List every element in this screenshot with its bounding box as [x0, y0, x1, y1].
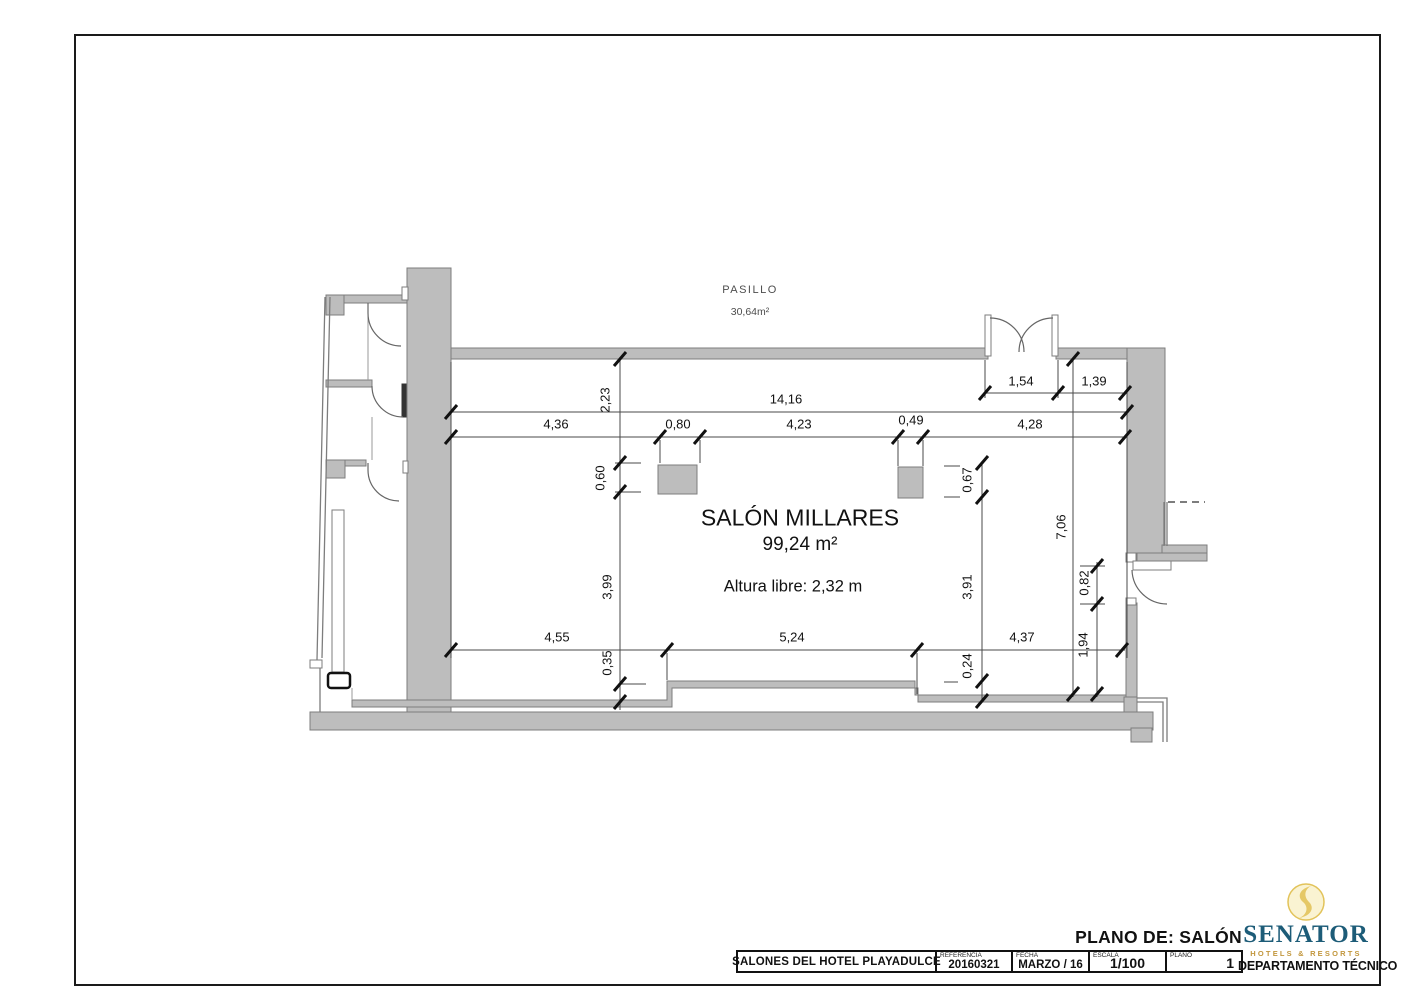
column-right: [898, 467, 923, 498]
dim-top-left-seg: 4,36: [543, 417, 568, 432]
door-jamb-stub-top: [402, 287, 408, 300]
dim-bottom-left-seg: 4,55: [544, 630, 569, 645]
dim-top-door: 1,54: [1008, 374, 1033, 389]
dim-top-door-right: 1,39: [1081, 374, 1106, 389]
top-door-right-leaf: [1052, 315, 1058, 356]
dim-col-left-width: 0,80: [665, 417, 690, 432]
title-block-table: SALONES DEL HOTEL PLAYADULCE REFERENCIA …: [736, 950, 1243, 973]
dim-right-inner: 3,91: [960, 574, 975, 599]
senator-logo-icon: [1286, 882, 1326, 922]
vestibule-partition-lines: [352, 313, 372, 700]
title-block-sheet-cell: PLANO 1: [1165, 952, 1241, 971]
dim-right-door-offset: 1,94: [1076, 632, 1091, 657]
corridor-label: PASILLO: [722, 284, 778, 296]
door-jamb-stub-mid: [403, 461, 408, 473]
logo-department: DEPARTAMENTO TÉCNICO: [1238, 959, 1374, 973]
dim-col-left-height: 0,60: [593, 465, 608, 490]
logo-tagline: HOTELS & RESORTS: [1238, 949, 1374, 958]
title-block-date-cell: FECHA MARZO / 16: [1011, 952, 1088, 971]
top-wall-left: [451, 348, 988, 359]
company-logo: SENATOR HOTELS & RESORTS DEPARTAMENTO TÉ…: [1238, 882, 1374, 973]
vestibule-door3-arc: [368, 463, 399, 501]
drawing-sheet: PASILLO 30,64m² SALÓN MILLARES 99,24 m² …: [0, 0, 1415, 1000]
vestibule-door1-arc: [368, 303, 401, 346]
dim-bottom-right-seg: 4,37: [1009, 630, 1034, 645]
dim-step-left: 0,35: [600, 650, 615, 675]
title-block-reference-cell: REFERENCIA 20160321: [935, 952, 1011, 971]
vestibule-door2-arc: [372, 386, 403, 417]
dim-top-mid-seg: 4,23: [786, 417, 811, 432]
dim-step-right: 0,24: [960, 653, 975, 678]
right-wall-upper: [1127, 348, 1165, 555]
dim-top-right-seg: 4,28: [1017, 417, 1042, 432]
corridor-area: 30,64m²: [731, 306, 770, 318]
right-side-band: [1137, 553, 1207, 561]
date-value: MARZO / 16: [1013, 959, 1088, 971]
vestibule-outer-wall-lines: [317, 297, 330, 712]
right-door-leaf: [1133, 561, 1171, 570]
dim-right-overall: 7,06: [1054, 514, 1069, 539]
column-left: [658, 465, 697, 494]
top-door-arcs: [990, 318, 1053, 352]
right-door-arc: [1132, 570, 1167, 604]
top-double-door-group: [985, 315, 1058, 356]
reference-value: 20160321: [937, 959, 1011, 971]
floor-plan-drawing: [0, 0, 1415, 1000]
niche-bottom-wall: [1162, 545, 1207, 553]
logo-brand-name: SENATOR: [1238, 922, 1374, 948]
dim-right-door: 0,82: [1077, 570, 1092, 595]
title-block-scale-cell: ESCALA 1/100: [1088, 952, 1165, 971]
dim-bottom-mid-seg: 5,24: [779, 630, 804, 645]
vestibule-block2: [326, 460, 345, 478]
bottom-main-wall: [310, 712, 1153, 730]
project-name: SALONES DEL HOTEL PLAYADULCE: [732, 956, 941, 968]
vestibule-details-group: [310, 287, 408, 712]
dim-left-offset: 2,23: [598, 387, 613, 412]
reference-label: REFERENCIA: [940, 952, 982, 959]
dim-col-right-width: 0,49: [898, 413, 923, 428]
left-main-wall: [407, 268, 451, 712]
vestibule-window: [332, 510, 344, 672]
sheet-number: 1: [1167, 955, 1241, 971]
right-wall-lower: [1126, 603, 1137, 697]
threshold-box: [328, 673, 350, 688]
vestibule-door2-leaf: [402, 384, 406, 417]
vestibule-block-top: [326, 295, 344, 315]
title-block-project-cell: SALONES DEL HOTEL PLAYADULCE: [738, 952, 935, 971]
vestibule-divider-wall: [326, 380, 372, 387]
top-wall-right: [1056, 348, 1127, 359]
corner-return-wall: [1131, 728, 1152, 742]
room-name: SALÓN MILLARES: [701, 505, 899, 532]
date-label: FECHA: [1016, 952, 1038, 959]
top-door-left-leaf: [985, 315, 991, 356]
corner-connector-wall: [1124, 697, 1137, 712]
room-clear-height: Altura libre: 2,32 m: [724, 578, 862, 597]
vestibule-left-notch: [310, 660, 322, 668]
dim-left-inner: 3,99: [600, 574, 615, 599]
dim-col-right-height: 0,67: [960, 467, 975, 492]
room-area: 99,24 m²: [763, 534, 838, 556]
dim-top-overall: 14,16: [770, 392, 803, 407]
scale-value: 1/100: [1090, 955, 1165, 971]
bottom-inner-wall: [352, 681, 1126, 707]
